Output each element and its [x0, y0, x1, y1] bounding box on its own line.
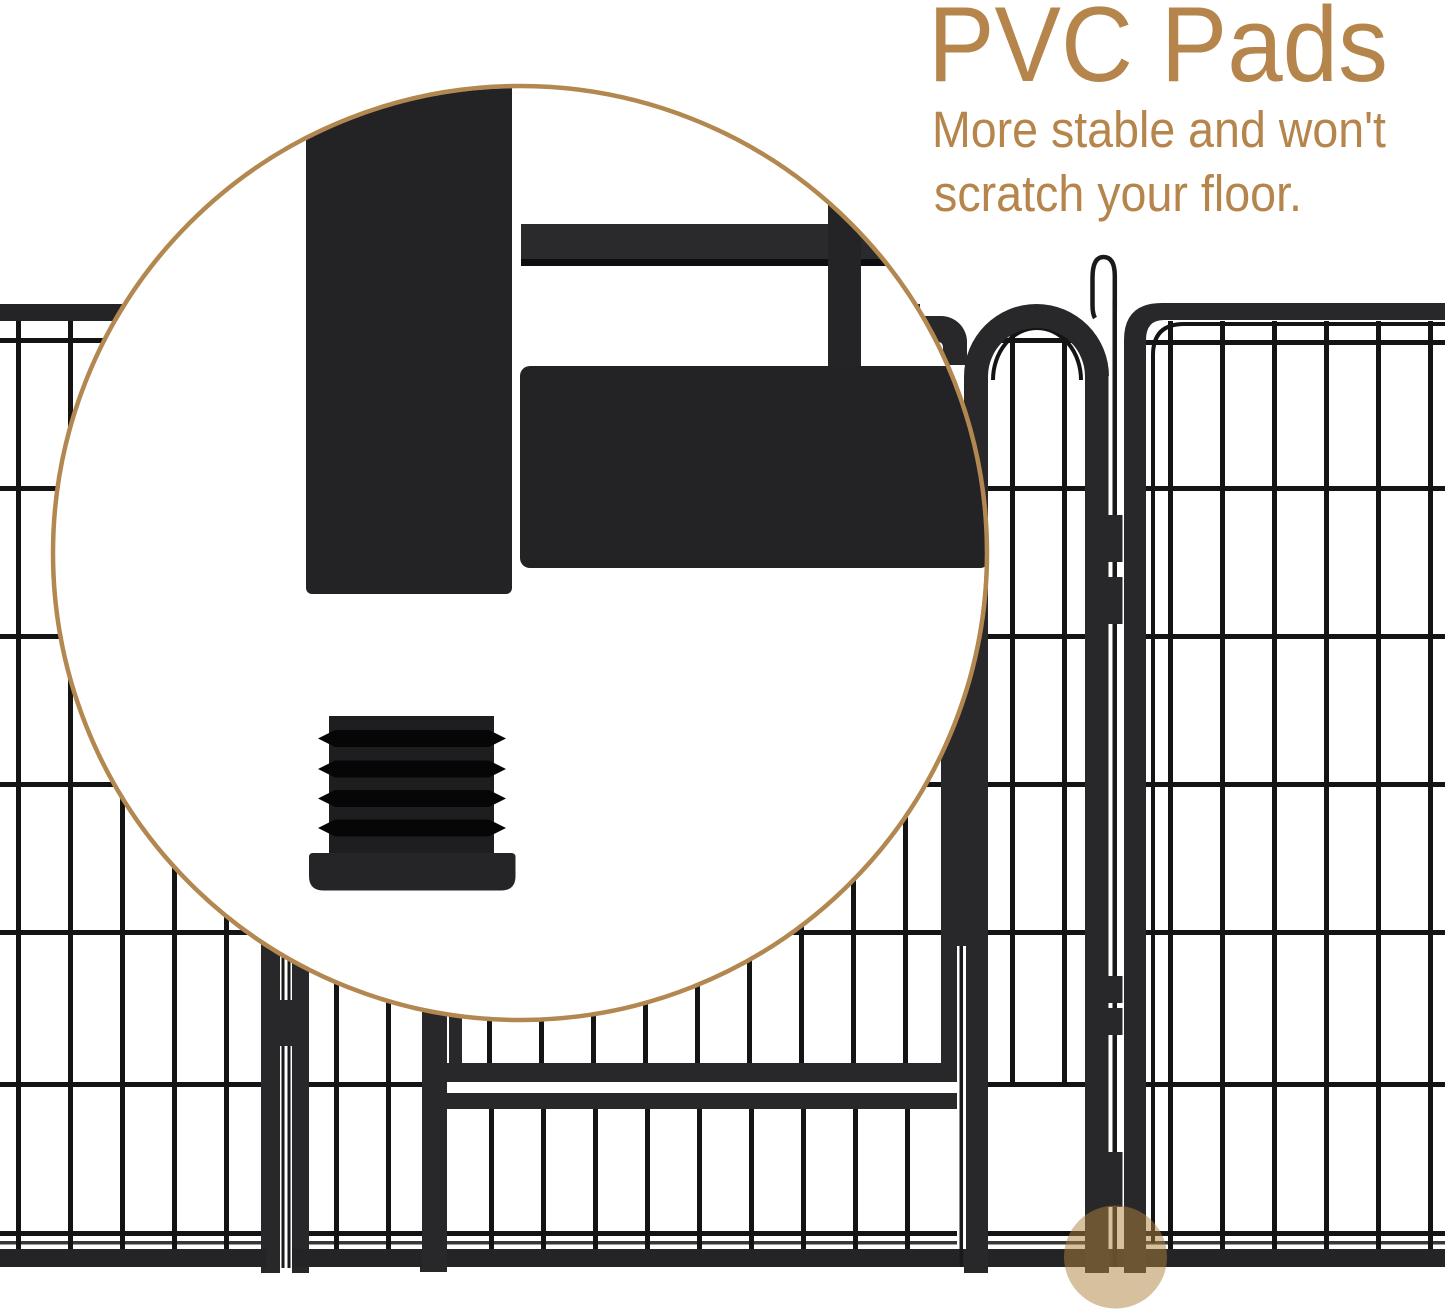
svg-text:scratch your floor.: scratch your floor. — [934, 165, 1302, 222]
svg-text:PVC Pads: PVC Pads — [928, 0, 1388, 104]
svg-text:More stable and won't: More stable and won't — [932, 101, 1386, 158]
